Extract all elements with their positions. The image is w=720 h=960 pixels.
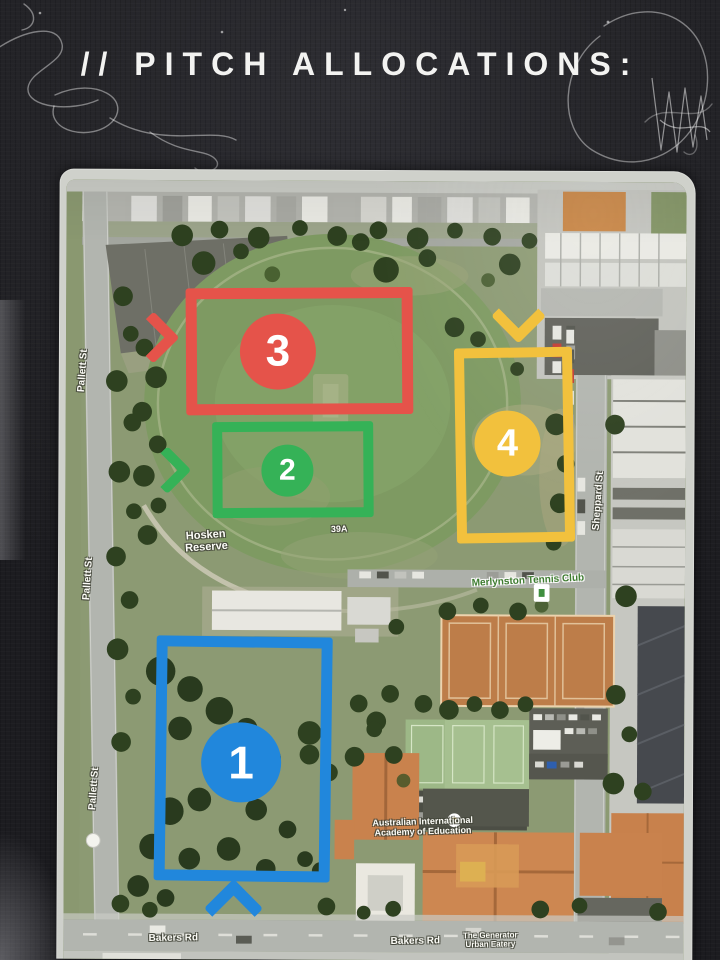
pitch-1-number: 1 bbox=[228, 735, 254, 789]
pitch-4-badge: 4 bbox=[474, 410, 540, 476]
pitch-3-badge: 3 bbox=[240, 313, 316, 389]
pitch-2-number: 2 bbox=[279, 454, 296, 488]
photo-glare-left bbox=[0, 300, 26, 560]
pitch-3-number: 3 bbox=[266, 327, 291, 377]
map-photo: Pallett St Pallett St Pallett St Sheppar… bbox=[56, 169, 695, 960]
page-title: // PITCH ALLOCATIONS: bbox=[0, 46, 720, 83]
pitch-1-badge: 1 bbox=[201, 722, 281, 802]
pitch-4-number: 4 bbox=[497, 422, 518, 465]
pitch-2-badge: 2 bbox=[261, 444, 313, 496]
poi-label-academy: Australian International Academy of Educ… bbox=[372, 816, 473, 839]
poi-label-eatery: The Generator Urban Eatery bbox=[463, 931, 518, 949]
street-label-bakers-1: Bakers Rd bbox=[149, 932, 199, 944]
parcel-label-39a: 39A bbox=[331, 524, 348, 534]
street-label-bakers-2: Bakers Rd bbox=[391, 935, 441, 947]
park-name-label: Hosken Reserve bbox=[184, 528, 228, 555]
poster-photo: { "title": "// PITCH ALLOCATIONS:", "map… bbox=[0, 0, 720, 960]
